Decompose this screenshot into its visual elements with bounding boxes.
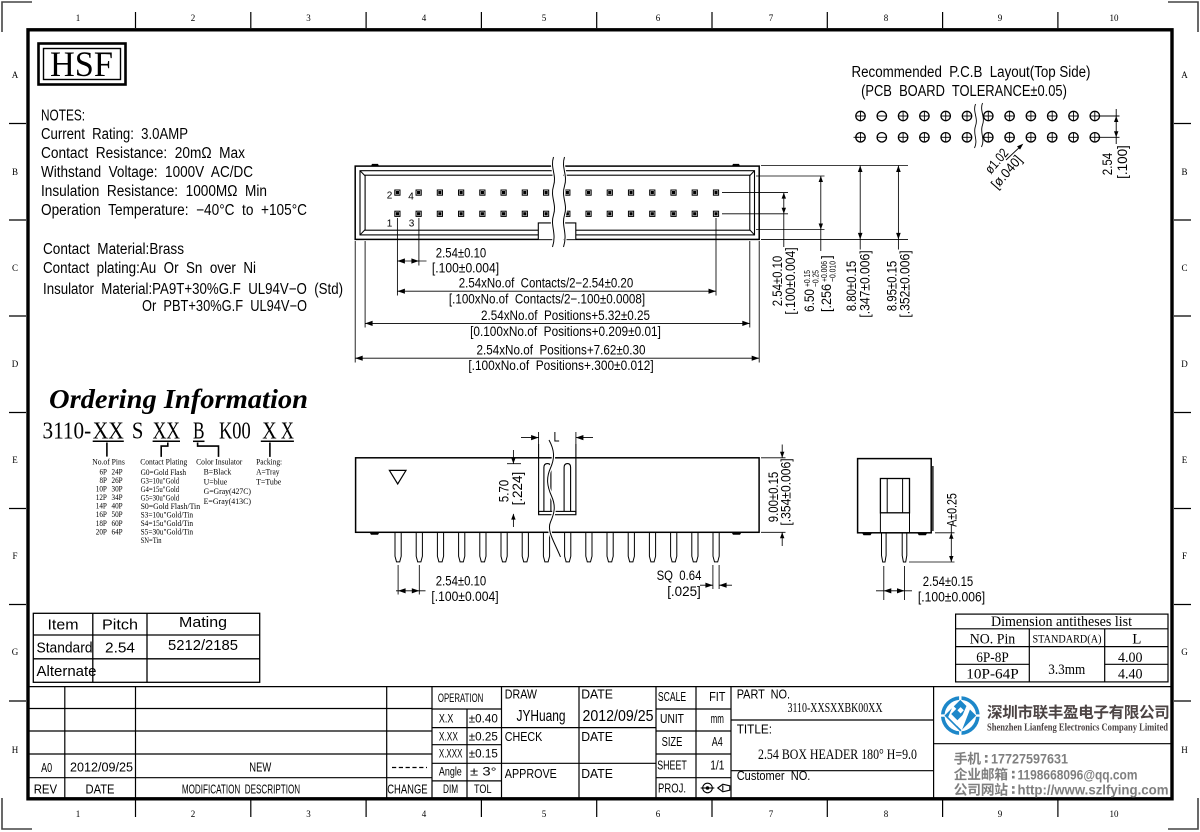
svg-text:±0.15: ±0.15 (469, 749, 498, 761)
svg-text:Insulation Resistance: 1000M: Insulation Resistance: 1000MΩ Min (41, 183, 267, 200)
svg-text:4: 4 (422, 809, 427, 819)
svg-text:Color Insulator: Color Insulator (196, 457, 242, 467)
svg-text:A: A (1181, 70, 1188, 80)
svg-text:6: 6 (656, 809, 661, 819)
svg-text:[.100±0.004]: [.100±0.004] (431, 589, 498, 604)
svg-text:2.54±0.15: 2.54±0.15 (923, 574, 973, 589)
svg-text:7: 7 (769, 809, 774, 819)
svg-text:2: 2 (191, 13, 196, 23)
svg-text:H: H (12, 745, 19, 755)
svg-text:A=Tray: A=Tray (256, 467, 280, 477)
svg-text:G: G (1181, 647, 1188, 657)
svg-text:D: D (1181, 359, 1188, 369)
svg-text:Contact Material:Brass: Contact Material:Brass (43, 241, 184, 258)
svg-text:±0.25: ±0.25 (469, 732, 498, 744)
svg-text:[.100±0.006]: [.100±0.006] (918, 590, 985, 605)
svg-text:mm: mm (711, 712, 724, 726)
svg-text:2012/09/25: 2012/09/25 (583, 708, 654, 725)
svg-text:T=Tube: T=Tube (256, 476, 281, 486)
svg-text:A4: A4 (712, 735, 723, 749)
svg-text:L: L (554, 430, 560, 445)
svg-text:[.224]: [.224] (510, 472, 525, 506)
svg-text:HSF: HSF (50, 44, 113, 84)
svg-text:Pitch: Pitch (102, 618, 138, 634)
svg-text:DATE: DATE (581, 767, 613, 781)
svg-text:3: 3 (409, 219, 415, 230)
svg-text:4: 4 (422, 13, 427, 23)
svg-text:DATE: DATE (581, 687, 613, 701)
svg-text:X.XXX: X.XXX (439, 749, 463, 761)
svg-text:L: L (1132, 631, 1141, 647)
svg-text:10P-64P: 10P-64P (966, 667, 1018, 683)
svg-text:No.of Pins: No.of Pins (92, 457, 125, 467)
svg-text:DRAW: DRAW (505, 687, 537, 701)
svg-text:E: E (12, 455, 18, 465)
svg-text:SCALE: SCALE (658, 690, 686, 704)
svg-text:Contact Plating: Contact Plating (140, 457, 188, 467)
svg-text:C: C (12, 263, 18, 273)
svg-text:3110-XXSXXBK00XX: 3110-XXSXXBK00XX (788, 700, 883, 715)
svg-text:NO. Pin: NO. Pin (970, 631, 1016, 647)
svg-text:2: 2 (387, 191, 393, 202)
svg-text:APPROVE: APPROVE (505, 767, 557, 781)
svg-text:Recommended P.C.B Layout(Top: Recommended P.C.B Layout(Top Side) (852, 64, 1091, 81)
svg-text:9: 9 (998, 809, 1003, 819)
svg-text:2012/09/25: 2012/09/25 (70, 760, 133, 774)
svg-text:9: 9 (998, 13, 1003, 23)
svg-text:OPERATION: OPERATION (438, 693, 483, 705)
svg-text:7: 7 (769, 13, 774, 23)
svg-text:2.54: 2.54 (1100, 152, 1115, 175)
svg-text:UNIT: UNIT (660, 712, 684, 726)
svg-text:[.347±0.006]: [.347±0.006] (858, 250, 873, 317)
svg-text:10: 10 (1110, 13, 1120, 23)
svg-text:A±0.25: A±0.25 (945, 493, 960, 527)
svg-text:C: C (1181, 263, 1187, 273)
svg-text:±0.40: ±0.40 (469, 714, 498, 726)
svg-text:2.54xNo.of Positions+5.32±0.2: 2.54xNo.of Positions+5.32±0.25 (481, 308, 650, 323)
svg-text:NOTES:: NOTES: (41, 108, 85, 125)
svg-text:F: F (12, 551, 17, 561)
svg-text:Withstand Voltage: 1000V AC: Withstand Voltage: 1000V AC/DC (41, 164, 253, 181)
svg-text:B=Black: B=Black (204, 467, 232, 477)
svg-text:Insulator Material:PA9T+30%G.: Insulator Material:PA9T+30%G.F UL94V−O (… (43, 281, 343, 298)
svg-text:[.354±0.006]: [.354±0.006] (779, 458, 794, 525)
svg-text:DATE: DATE (581, 730, 613, 744)
svg-text:1: 1 (76, 13, 81, 23)
svg-text:B: B (1181, 167, 1187, 177)
svg-text:2: 2 (191, 809, 196, 819)
svg-text:Contact plating:Au Or Sn o: Contact plating:Au Or Sn over Ni (43, 260, 256, 277)
svg-text:2.54±0.10: 2.54±0.10 (436, 246, 486, 261)
svg-text:Dimension antitheses list: Dimension antitheses list (991, 614, 1133, 630)
svg-text:X.X: X.X (439, 714, 454, 726)
svg-text:[.100±0.004]: [.100±0.004] (783, 247, 798, 314)
svg-text:Or PBT+30%G.F UL94V−O: Or PBT+30%G.F UL94V−O (142, 298, 307, 315)
svg-text:17727597631: 17727597631 (991, 751, 1068, 767)
svg-text:2.54xNo.of Contacts/2−2.54±0.: 2.54xNo.of Contacts/2−2.54±0.20 (459, 276, 633, 291)
svg-text:5: 5 (542, 809, 547, 819)
svg-text:A: A (12, 70, 19, 80)
svg-text:10: 10 (1110, 809, 1120, 819)
svg-text:[0.100xNo.of Positions+0.209±: [0.100xNo.of Positions+0.209±0.01] (470, 324, 661, 339)
svg-text:4.00: 4.00 (1118, 650, 1143, 666)
svg-text:5212/2185: 5212/2185 (168, 638, 238, 654)
svg-text:REV: REV (34, 782, 58, 796)
svg-text:TOL: TOL (474, 784, 492, 796)
svg-text:6P-8P: 6P-8P (976, 650, 1009, 666)
svg-text:X.XX: X.XX (439, 732, 458, 744)
svg-text:F: F (1182, 551, 1187, 561)
svg-text:SQ 0.64: SQ 0.64 (657, 568, 702, 583)
svg-text:K00: K00 (219, 418, 251, 445)
svg-text:8: 8 (884, 809, 889, 819)
svg-text:G: G (12, 647, 19, 657)
svg-text:U=blue: U=blue (204, 476, 228, 486)
svg-text:Contact Resistance: 20mΩ Ma: Contact Resistance: 20mΩ Max (41, 145, 245, 162)
svg-text:TITLE:: TITLE: (737, 723, 772, 737)
svg-text:[.100xNo.of Positions+.300±0.: [.100xNo.of Positions+.300±0.012] (468, 358, 653, 373)
svg-text:2.54±0.10: 2.54±0.10 (436, 574, 486, 589)
svg-text:1: 1 (76, 809, 81, 819)
svg-text:6: 6 (656, 13, 661, 23)
svg-text:4: 4 (408, 192, 414, 203)
svg-text:H: H (1181, 745, 1188, 755)
svg-text:Operation Temperature: −40°C: Operation Temperature: −40°C to +105°C (41, 202, 307, 219)
svg-text:[.100±0.004]: [.100±0.004] (432, 261, 499, 276)
svg-text:2.54 BOX HEADER 180° H=9.0: 2.54 BOX HEADER 180° H=9.0 (758, 747, 917, 763)
svg-text:64P: 64P (112, 526, 123, 536)
svg-text:DIM: DIM (443, 784, 458, 796)
svg-text:Standard: Standard (37, 641, 93, 657)
svg-text:E: E (1182, 455, 1188, 465)
svg-text:http://www.szlfying.com: http://www.szlfying.com (1018, 782, 1169, 798)
svg-text:5: 5 (542, 13, 547, 23)
svg-text:20P: 20P (96, 526, 107, 536)
svg-text:Current Rating: 3.0AMP: Current Rating: 3.0AMP (41, 126, 188, 143)
svg-text:Alternate: Alternate (37, 664, 97, 680)
svg-text:3110-: 3110- (43, 418, 92, 445)
svg-text:3: 3 (306, 13, 311, 23)
svg-text:Packing:: Packing: (256, 457, 282, 467)
svg-text:[.100xNo.of Contacts/2−.100±0: [.100xNo.of Contacts/2−.100±0.0008] (449, 292, 645, 307)
svg-text:Shenzhen Lianfeng Electronics: Shenzhen Lianfeng Electronics Company Li… (987, 723, 1168, 734)
svg-text:Customer NO.: Customer NO. (737, 769, 811, 783)
svg-text:SN=Tin: SN=Tin (141, 535, 163, 545)
svg-text:SIZE: SIZE (662, 735, 683, 749)
svg-text:]: ] (819, 255, 834, 259)
svg-text:A0: A0 (41, 761, 52, 775)
svg-text:1/1: 1/1 (710, 759, 724, 773)
svg-text:Angle: Angle (439, 767, 462, 779)
svg-text:[.025]: [.025] (667, 584, 701, 599)
svg-text:4.40: 4.40 (1118, 667, 1143, 683)
svg-text:± 3°: ± 3° (470, 767, 497, 779)
svg-text:6.50: 6.50 (802, 289, 817, 312)
svg-text:G=Gray(427C): G=Gray(427C) (204, 486, 252, 496)
svg-text:S: S (132, 418, 144, 445)
svg-text:[.352±0.006]: [.352±0.006] (898, 250, 913, 317)
svg-text:[.100]: [.100] (1115, 145, 1130, 179)
svg-text:CHANGE: CHANGE (387, 782, 427, 796)
svg-text:STANDARD(A): STANDARD(A) (1033, 632, 1102, 646)
svg-text:Item: Item (48, 618, 79, 634)
svg-text:JYHuang: JYHuang (517, 708, 566, 725)
svg-text:MODIFICATION DESCRIPTION: MODIFICATION DESCRIPTION (182, 782, 300, 796)
svg-text:3: 3 (306, 809, 311, 819)
svg-text:PART NO.: PART NO. (737, 687, 790, 701)
svg-text:E=Gray(413C): E=Gray(413C) (204, 496, 252, 506)
svg-text:DATE: DATE (86, 782, 115, 796)
svg-text:CHECK: CHECK (505, 730, 543, 744)
svg-text:SHEET: SHEET (657, 759, 687, 773)
svg-text:PROJ.: PROJ. (658, 782, 686, 796)
svg-text:1: 1 (387, 219, 393, 230)
svg-text:(PCB BOARD TOLERANCE±0.05): (PCB BOARD TOLERANCE±0.05) (861, 83, 1067, 100)
svg-text:D: D (12, 359, 19, 369)
svg-text:[.256: [.256 (819, 284, 834, 312)
svg-text:NEW: NEW (249, 761, 271, 775)
svg-text:2.54xNo.of Positions+7.62±0.3: 2.54xNo.of Positions+7.62±0.30 (477, 343, 646, 358)
svg-text:−0.010: −0.010 (828, 261, 838, 282)
svg-text:1198668096@qq.com: 1198668096@qq.com (1018, 766, 1138, 782)
svg-text:3.3mm: 3.3mm (1048, 662, 1085, 678)
svg-text:Ordering Information: Ordering Information (49, 384, 308, 414)
svg-text:2.54: 2.54 (105, 641, 135, 657)
svg-text:8: 8 (884, 13, 889, 23)
svg-text:FIT: FIT (709, 690, 726, 704)
svg-text:Mating: Mating (179, 615, 227, 631)
svg-text:B: B (12, 167, 18, 177)
